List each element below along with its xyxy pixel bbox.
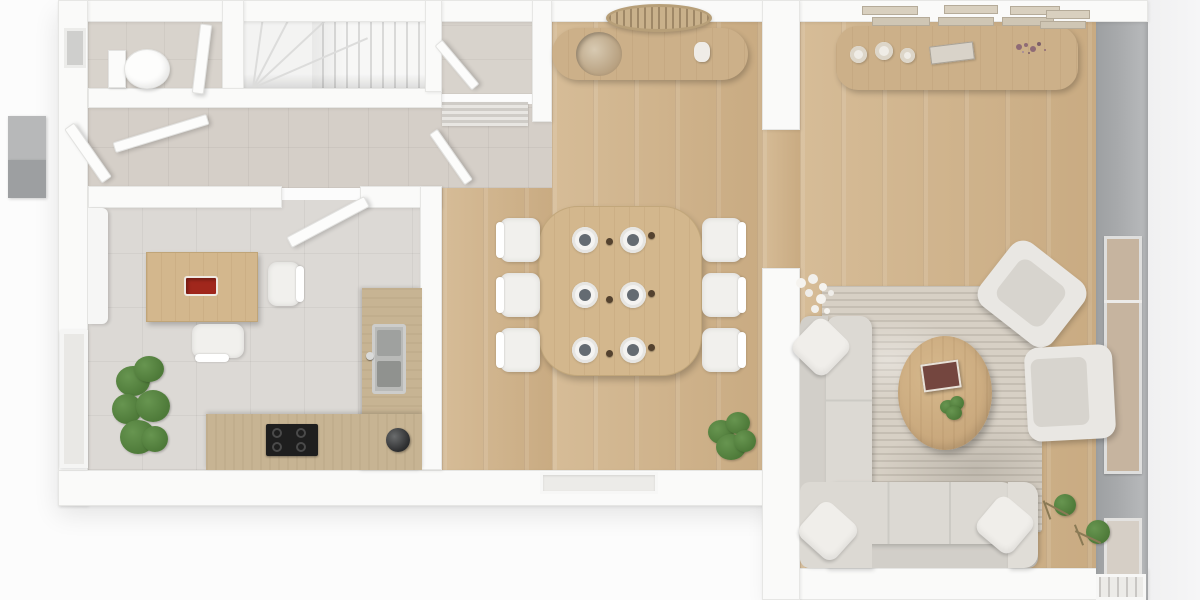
dining-window [540,472,658,494]
wall-shelf-stack-4b [1040,21,1086,29]
table-cup-4 [648,290,655,297]
floor-plan-render [0,0,1200,600]
console-bowl [576,32,622,76]
candle-2 [875,42,893,60]
storage-right-wall [532,0,552,122]
exterior-right-band [1148,0,1200,600]
place-setting-5 [572,337,598,363]
kettle [386,428,410,452]
rattan-pendant-light [606,4,712,32]
red-serving-tray [184,276,218,296]
place-setting-1 [572,227,598,253]
right-wall-window-mullion [1104,300,1142,303]
kitchen-dining-wall [420,186,442,470]
bottom-wall-living [780,568,1148,600]
toilet-bowl [124,49,170,89]
wall-shelf-stack-2 [944,5,998,14]
candle-3 [900,48,915,63]
dining-chair-3 [500,328,540,372]
dining-chair-5 [702,273,742,317]
dining-chair-4 [702,218,742,262]
dining-chair-1 [500,218,540,262]
coffee-table-books [920,359,962,392]
place-setting-4 [620,282,646,308]
kitchen-chair-right [268,262,300,306]
armchair-right-cushion [1030,357,1089,428]
bottom-wall-left [58,470,780,506]
table-cup-5 [606,350,613,357]
cooktop-burner-3 [272,442,282,452]
wc-right-wall [222,0,244,100]
divider-wall-top [762,0,800,130]
hall-top-wall [88,88,442,108]
wall-shelf-stack-2b [938,17,994,26]
table-cup-3 [606,296,613,303]
table-cup-2 [648,232,655,239]
table-cup-1 [606,238,613,245]
kitchen-top-wall-left [88,186,282,208]
kitchen-sink-bowl-bottom [377,361,401,387]
table-cup-6 [648,344,655,351]
console-vase [694,42,710,62]
wall-shelf-stack-1b [872,17,930,26]
topiary-stand-1 [1044,492,1078,522]
divider-wall-bottom [762,268,800,600]
dining-chair-6 [702,328,742,372]
chimney-box-upper [8,116,46,160]
wall-shelf-stack-4 [1046,10,1090,19]
place-setting-6 [620,337,646,363]
candle-1 [850,46,867,63]
kitchen-sink-bowl-top [377,330,401,356]
coffee-table [898,336,992,450]
kitchen-chair-bottom [192,324,244,358]
kitchen-plant [112,356,172,466]
cooktop-burner-1 [272,428,282,438]
kitchen-faucet [366,352,374,360]
cooktop-burner-4 [296,442,306,452]
dried-flowers [1016,44,1022,50]
coffee-table-plant [940,396,970,424]
kitchen-window [60,330,88,468]
topiary-stand-2 [1074,516,1110,548]
wall-shelf-stack-1 [862,6,918,15]
kitchen-radiator [88,208,108,324]
white-flower-decor [796,278,806,288]
doormat [442,102,528,126]
wc-window [64,28,86,68]
cooktop-burner-2 [296,428,306,438]
place-setting-3 [572,282,598,308]
chimney-box-lower [8,160,46,198]
dining-chair-2 [500,273,540,317]
living-bottom-window [1096,574,1146,600]
dining-plant [706,412,758,464]
passage-floor [762,130,800,270]
place-setting-2 [620,227,646,253]
